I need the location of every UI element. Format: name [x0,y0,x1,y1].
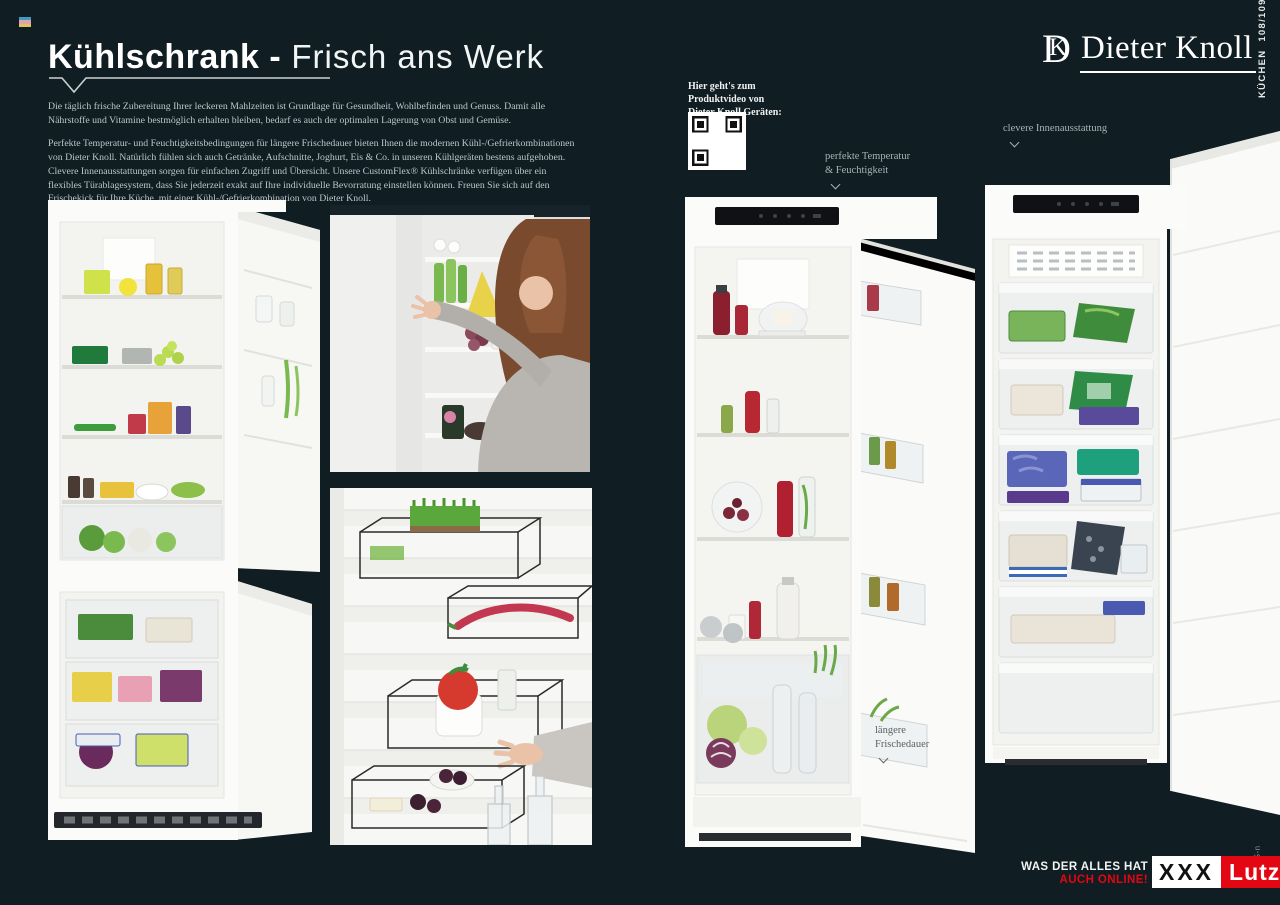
registration-mark-icon [19,17,31,27]
page-title-light: Frisch ans Werk [281,38,544,75]
intro-text: Die täglich frische Zubereitung Ihrer le… [48,100,582,215]
footer-claim-line2: AUCH ONLINE! [1021,874,1148,887]
page-title-bold: Kühlschrank - [48,38,281,76]
qr-code [688,112,746,170]
dieter-knoll-monogram-icon: D K [1042,28,1072,70]
photo-fridge-freezer-combi [48,200,322,845]
intro-paragraph-2: Perfekte Temperatur- und Feuchtigkeitsbe… [48,137,582,207]
xxxlutz-logo-xxx: XXX [1152,856,1221,888]
chevron-down-icon [831,180,840,189]
xxxlutz-logo-lutz: Lutz [1221,856,1280,888]
title-underline-rule [48,76,332,96]
page-title: Kühlschrank - Frisch ans Werk [48,38,544,77]
chevron-down-icon [1010,138,1019,147]
monogram-k: K [1049,35,1067,60]
dieter-knoll-logo: D K Dieter Knoll [1042,28,1256,73]
annotation-temperatur: perfekte Temperatur & Feuchtigkeit [825,150,910,177]
xxxlutz-logo: XXX Lutz [1152,856,1280,888]
dieter-knoll-wordmark: Dieter Knoll [1080,28,1256,73]
footer-claim: WAS DER ALLES HAT AUCH ONLINE! [1021,861,1148,887]
photo-tall-refrigerator [685,185,977,865]
photo-woman-at-fridge [330,205,590,472]
annotation-innenausstattung: clevere Innenausstattung [1003,122,1107,136]
page-marker: KÜCHEN 108/109 [1257,0,1268,98]
annotation-frischedauer: längere Frischedauer [875,724,929,751]
photo-tall-freezer [985,115,1280,815]
footer-claim-line1: WAS DER ALLES HAT [1021,861,1148,874]
catalog-page: Kühlschrank - Frisch ans Werk Die täglic… [0,0,1280,905]
photo-customflex-door-boxes [330,488,592,845]
intro-paragraph-1: Die täglich frische Zubereitung Ihrer le… [48,100,582,128]
chevron-down-icon [879,754,888,763]
